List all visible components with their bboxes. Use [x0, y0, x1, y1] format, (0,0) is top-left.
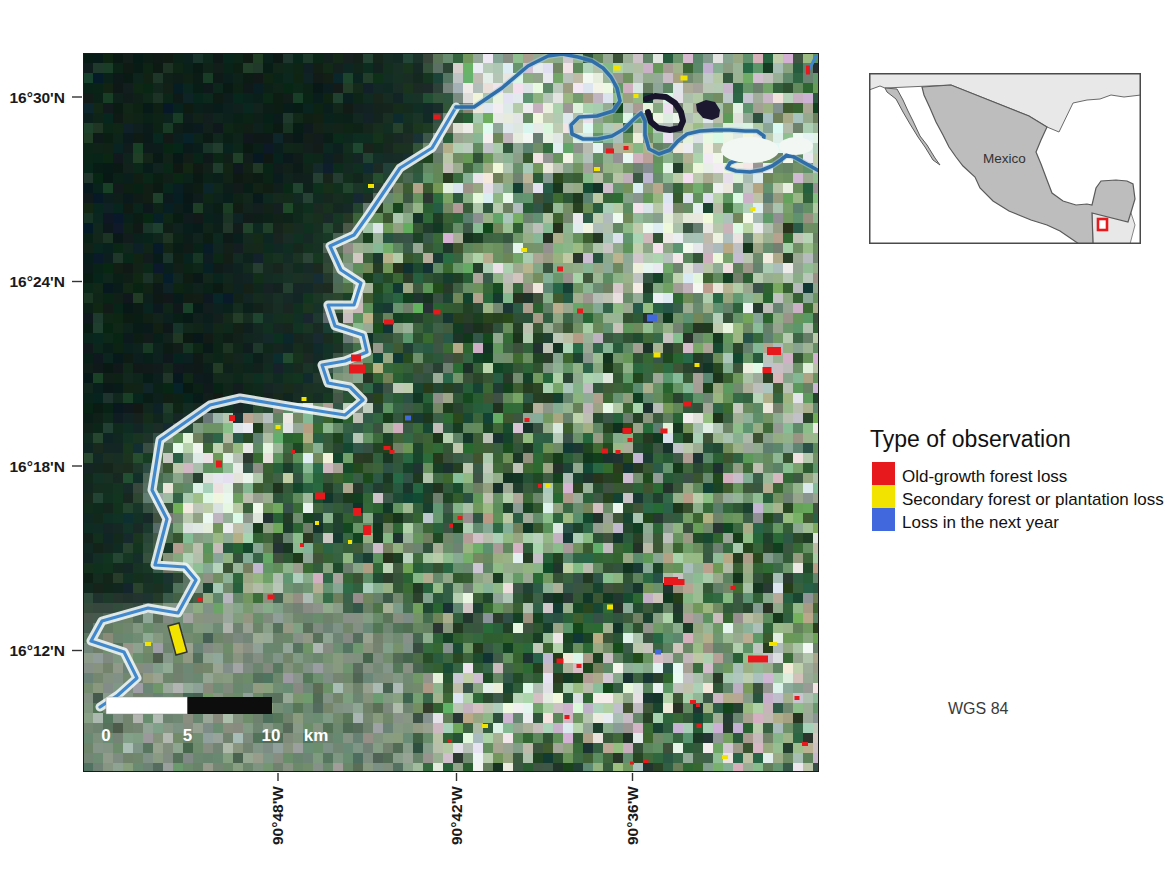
svg-text:16°18'N: 16°18'N	[9, 458, 65, 475]
svg-text:Mexico: Mexico	[983, 151, 1026, 166]
svg-text:90°48'W: 90°48'W	[269, 786, 286, 845]
svg-text:16°30'N: 16°30'N	[9, 89, 65, 106]
svg-text:90°42'W: 90°42'W	[448, 786, 465, 845]
svg-text:16°24'N: 16°24'N	[9, 273, 65, 290]
svg-text:90°36'W: 90°36'W	[624, 786, 641, 845]
svg-text:16°12'N: 16°12'N	[9, 642, 65, 659]
